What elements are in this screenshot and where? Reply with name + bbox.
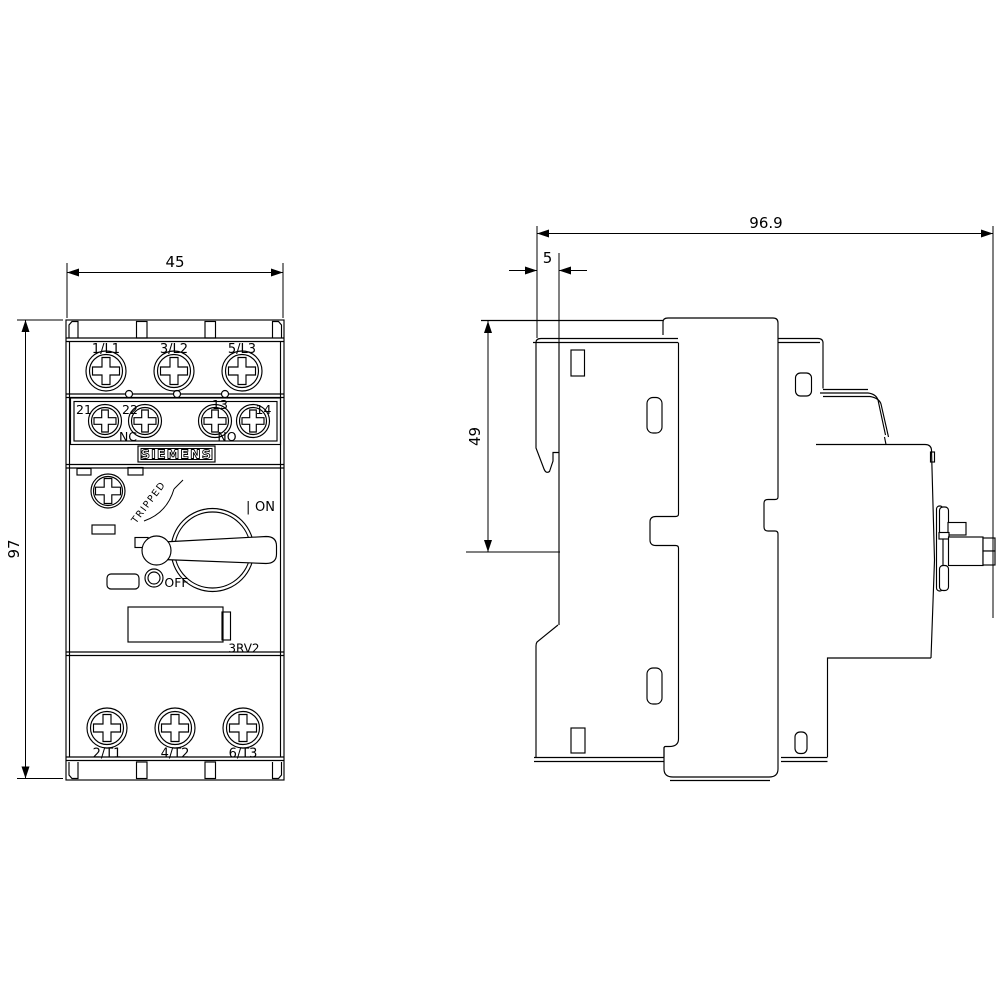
drawing-canvas: 1/L1 3/L2 5/L3 21 22 (0, 0, 1000, 1000)
front-view-drawing: 1/L1 3/L2 5/L3 21 22 (66, 320, 284, 780)
terminal-screw-icon (155, 708, 195, 748)
dim-height-label: 97 (5, 539, 23, 558)
side-slot (796, 373, 812, 396)
side-slot (647, 398, 662, 434)
handle-hub (142, 536, 171, 565)
product-code-label: 3RV2 (228, 642, 259, 656)
dimension-96-9: 96.9 (537, 214, 993, 618)
on-marker: | (246, 500, 250, 515)
side-view-drawing (481, 318, 995, 781)
dimension-drawing: 1/L1 3/L2 5/L3 21 22 (0, 0, 1000, 1000)
brand-plate: SIEMENS (138, 446, 215, 462)
brand-label: SIEMENS (141, 447, 212, 462)
line-terminal-screws (86, 351, 262, 391)
dimension-97: 97 (5, 320, 63, 779)
dim-clip-label: 5 (543, 249, 553, 267)
side-rear-body (778, 339, 935, 762)
aux-screw-icon (89, 405, 122, 438)
dim-width-label: 45 (165, 253, 184, 271)
load-terminal-label-2: 4/T2 (161, 747, 190, 762)
side-slot (571, 350, 585, 376)
side-slot (571, 728, 585, 753)
din-rail-clip (536, 343, 559, 473)
dimension-45: 45 (67, 253, 283, 318)
rotary-knob[interactable] (135, 509, 277, 592)
dimension-49: 49 (466, 321, 560, 552)
no-label: NO (217, 429, 236, 444)
vent-slot (77, 469, 91, 476)
on-label: ON (255, 500, 275, 515)
divider-notch (126, 391, 133, 398)
aux-terminal-label-13: 13 (212, 397, 228, 412)
aux-terminal-label-22: 22 (122, 402, 138, 417)
aux-terminal-label-21: 21 (76, 402, 92, 417)
terminal-screw-icon (154, 351, 194, 391)
operator-section: TRIPPED | ON OFF 3RV2 (77, 468, 277, 656)
load-terminal-label-3: 6/T3 (229, 747, 258, 762)
side-slot (795, 732, 807, 754)
load-terminal-label-1: 2/T1 (93, 747, 122, 762)
side-front-cover (533, 339, 679, 762)
terminal-lug (949, 537, 984, 566)
load-terminal-screws (87, 708, 263, 748)
terminal-screw-icon (87, 708, 127, 748)
reset-screw-icon (91, 474, 125, 508)
window-slot (92, 525, 115, 534)
line-terminal-label-1: 1/L1 (92, 342, 120, 357)
line-terminal-label-3: 5/L3 (228, 342, 256, 357)
aux-contact-block: 21 22 13 14 NC NO (71, 397, 281, 445)
terminal-screw-icon (222, 351, 262, 391)
off-label: OFF (164, 575, 188, 590)
side-slot (647, 668, 662, 704)
side-terminal-assembly (937, 506, 996, 591)
terminal-screw-icon (223, 708, 263, 748)
vent-slot (128, 468, 143, 476)
dim-depth-label: 96.9 (749, 214, 782, 232)
line-terminal-label-2: 3/L2 (160, 342, 188, 357)
side-center-module (663, 318, 778, 781)
aux-terminal-label-14: 14 (256, 402, 272, 417)
rating-label-field (128, 607, 223, 642)
nc-label: NC (119, 429, 137, 444)
terminal-screw-icon (86, 351, 126, 391)
test-button[interactable] (107, 574, 139, 589)
mounting-tabs-bottom (69, 762, 282, 779)
dimension-5: 5 (509, 249, 587, 342)
dim-upper-depth-label: 49 (466, 427, 484, 446)
mounting-tabs-top (69, 322, 282, 339)
